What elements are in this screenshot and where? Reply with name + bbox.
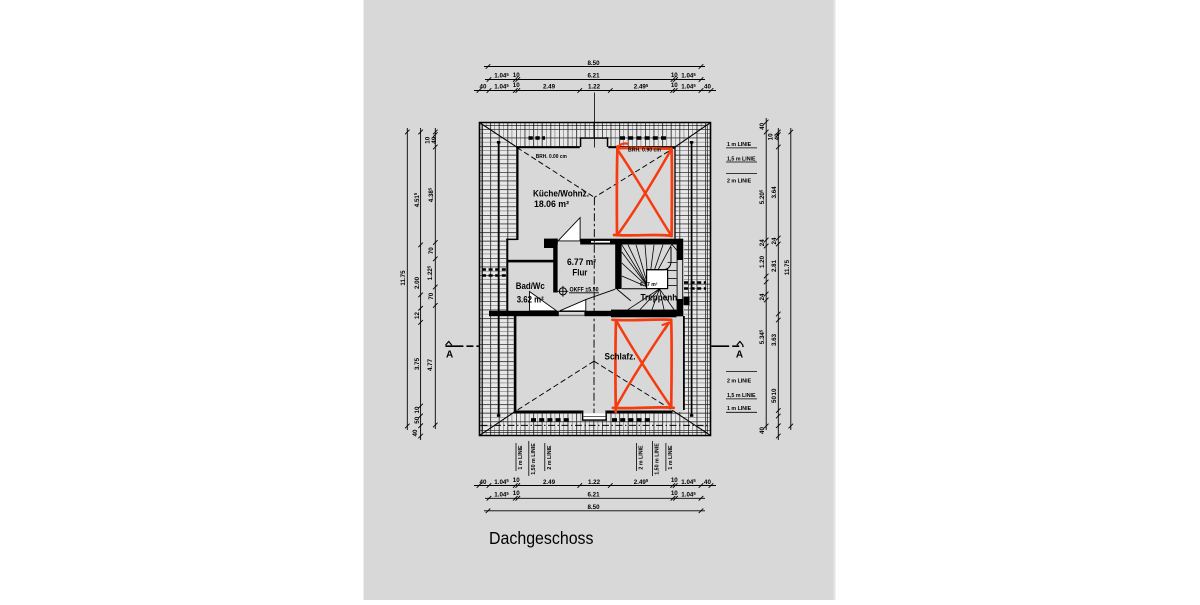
svg-text:1.20: 1.20: [759, 255, 766, 268]
svg-text:40: 40: [704, 479, 711, 486]
svg-text:12: 12: [414, 312, 421, 319]
svg-text:24: 24: [759, 239, 766, 246]
svg-text:11.75: 11.75: [400, 270, 407, 286]
svg-text:1,50 m LINIE: 1,50 m LINIE: [531, 443, 537, 475]
svg-text:1 m LINIE: 1 m LINIE: [727, 406, 752, 412]
svg-text:40: 40: [480, 84, 487, 91]
svg-text:10: 10: [771, 388, 778, 395]
svg-text:10: 10: [513, 72, 520, 79]
svg-text:1,50 m LINIE: 1,50 m LINIE: [655, 443, 661, 475]
svg-text:BRH. 0.90 cm: BRH. 0.90 cm: [628, 147, 661, 153]
svg-text:1.22: 1.22: [588, 479, 601, 486]
svg-text:70: 70: [428, 247, 435, 254]
svg-text:10: 10: [513, 490, 520, 497]
svg-text:6.21: 6.21: [587, 73, 600, 80]
svg-text:1,5 m LINIE: 1,5 m LINIE: [727, 393, 756, 399]
svg-text:1 m LINIE: 1 m LINIE: [727, 142, 752, 148]
svg-text:40: 40: [412, 429, 419, 436]
svg-text:10: 10: [414, 406, 421, 413]
svg-text:4.77: 4.77: [427, 358, 434, 371]
svg-text:40: 40: [480, 479, 487, 486]
svg-text:8.50: 8.50: [587, 60, 600, 67]
svg-text:49: 49: [431, 136, 438, 143]
svg-text:2 m LINIE: 2 m LINIE: [727, 179, 752, 185]
svg-text:10: 10: [671, 82, 678, 89]
svg-text:2 m LINIE: 2 m LINIE: [639, 445, 645, 470]
svg-text:Küche/Wohnz.: Küche/Wohnz.: [533, 189, 589, 199]
svg-text:2.81: 2.81: [771, 259, 778, 272]
svg-text:18.06 m²: 18.06 m²: [534, 199, 569, 209]
svg-text:3.63: 3.63: [771, 333, 778, 346]
svg-text:10: 10: [671, 477, 678, 484]
svg-text:A: A: [446, 350, 453, 361]
svg-text:70: 70: [428, 292, 435, 299]
svg-text:Bad/Wc: Bad/Wc: [516, 281, 545, 291]
svg-text:1.22: 1.22: [588, 84, 601, 91]
svg-text:Flur: Flur: [572, 268, 588, 278]
svg-text:2 m LINIE: 2 m LINIE: [547, 445, 553, 470]
svg-text:2 m LINIE: 2 m LINIE: [727, 379, 752, 385]
svg-text:6.21: 6.21: [587, 492, 600, 499]
svg-text:Dachgeschoss: Dachgeschoss: [489, 528, 594, 548]
svg-text:1 m LINIE: 1 m LINIE: [518, 445, 524, 470]
svg-text:24: 24: [759, 293, 766, 300]
svg-text:10: 10: [671, 490, 678, 497]
svg-text:BRH. 0.00 cm: BRH. 0.00 cm: [536, 154, 567, 160]
svg-text:6.77 m²: 6.77 m²: [567, 257, 596, 267]
svg-text:24: 24: [771, 237, 778, 244]
svg-text:10: 10: [513, 82, 520, 89]
svg-text:50: 50: [414, 416, 421, 423]
svg-text:50: 50: [771, 396, 778, 403]
svg-text:A: A: [736, 350, 743, 361]
svg-text:2.49: 2.49: [543, 479, 556, 486]
svg-text:2.00: 2.00: [414, 276, 421, 289]
svg-text:11.75: 11.75: [784, 259, 791, 275]
svg-text:40: 40: [759, 427, 766, 434]
svg-text:49: 49: [774, 133, 781, 140]
svg-text:40: 40: [759, 122, 766, 129]
svg-text:3.75: 3.75: [414, 357, 421, 370]
svg-text:1,5 m LINIE: 1,5 m LINIE: [727, 156, 756, 162]
svg-text:Treppenh.: Treppenh.: [641, 292, 680, 302]
svg-text:10: 10: [513, 477, 520, 484]
svg-text:6.77 m²: 6.77 m²: [640, 282, 658, 288]
svg-text:8.50: 8.50: [587, 504, 600, 511]
svg-text:3.62 m²: 3.62 m²: [517, 295, 544, 305]
svg-text:Schlafz.: Schlafz.: [605, 352, 636, 362]
svg-text:2.49: 2.49: [543, 84, 556, 91]
svg-text:1 m LINIE: 1 m LINIE: [668, 445, 674, 470]
svg-text:10: 10: [671, 72, 678, 79]
svg-text:40: 40: [704, 84, 711, 91]
svg-text:3.64: 3.64: [771, 186, 778, 199]
